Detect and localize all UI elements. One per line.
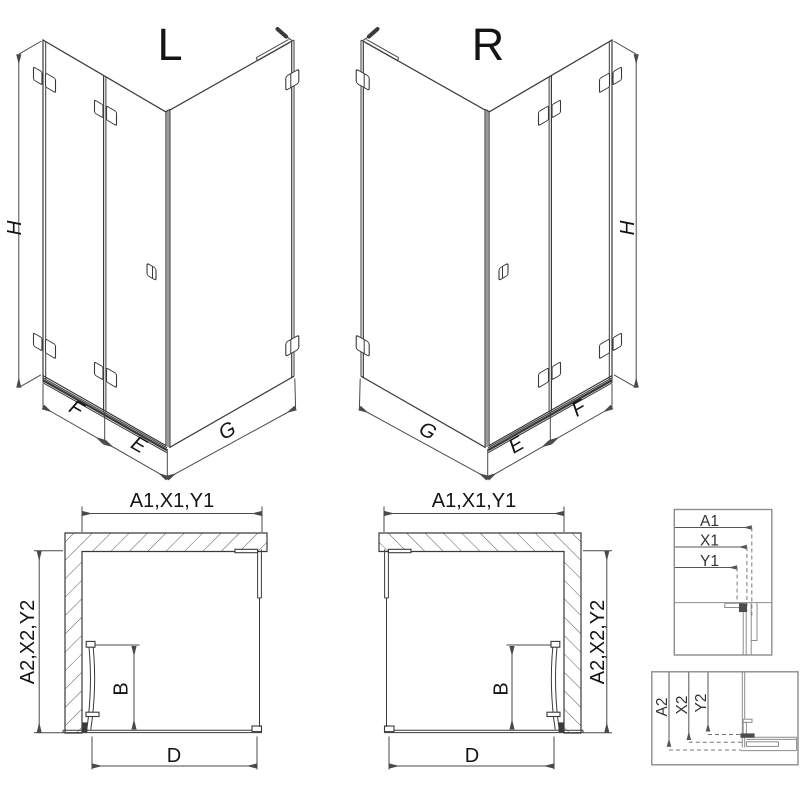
plan-right-depth-dims-label: A2,X2,Y2 xyxy=(587,600,609,685)
dim-label-height-right: H xyxy=(616,220,639,235)
plan-left-opening-width-label: D xyxy=(167,745,181,767)
dim-label-height-left: H xyxy=(3,220,26,235)
plan-right-door-width-label: B xyxy=(491,682,513,695)
variant-label-right: R xyxy=(472,19,505,70)
page-background xyxy=(0,0,800,800)
technical-drawing-canvas: L H F E G R H F E G A1,X1,Y1 A2,X2,Y2 B … xyxy=(0,0,800,800)
shower-enclosure-diagram: L H F E G R H F E G A1,X1,Y1 A2,X2,Y2 B … xyxy=(0,0,800,800)
plan-left-depth-dims-label: A2,X2,Y2 xyxy=(17,600,39,685)
variant-label-left: L xyxy=(157,19,182,70)
detail-x1-label: X1 xyxy=(700,533,719,550)
plan-right-opening-width-label: D xyxy=(465,745,479,767)
detail-a1-label: A1 xyxy=(700,513,719,530)
plan-left-width-dims-label: A1,X1,Y1 xyxy=(130,490,215,512)
detail-y2-label: Y2 xyxy=(693,694,710,713)
plan-left-door-width-label: B xyxy=(111,682,133,695)
detail-a2-label: A2 xyxy=(654,698,671,717)
detail-y1-label: Y1 xyxy=(700,553,719,570)
plan-right-width-dims-label: A1,X1,Y1 xyxy=(432,490,517,512)
detail-x2-label: X2 xyxy=(674,696,691,715)
